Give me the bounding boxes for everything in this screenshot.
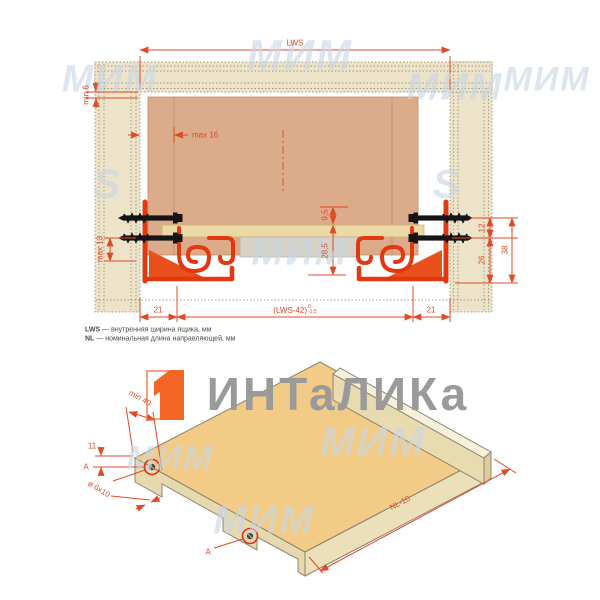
brand-logo-icon: [147, 370, 184, 420]
brand-title: ИНТаЛИКа: [207, 367, 469, 421]
drawer-back-recess: [240, 237, 357, 257]
dim-lws42-tolerance: 0 -1,5: [308, 305, 317, 315]
dim-max13-label: max 13: [96, 236, 105, 262]
dim-21-right-label: 21: [427, 306, 436, 315]
legend-text-lws: — внутренняя ширина ящика, мм: [100, 327, 211, 334]
dim-min6-label: min 6: [82, 85, 91, 105]
legend-line-nl: NL — номинальная длина направляющей, мм: [85, 336, 236, 343]
legend-term-nl: NL: [85, 336, 94, 343]
dim-max16-label: max 16: [192, 131, 218, 140]
tolerance-lower: -1,5: [308, 310, 317, 315]
legend-term-lws: LWS: [85, 327, 100, 334]
dim-38-label: 38: [501, 246, 510, 255]
top-cross-section-view: [86, 50, 518, 322]
dim-21-left-label: 21: [154, 306, 163, 315]
dim-12-label: 12: [478, 224, 487, 233]
cabinet-right-panel: [450, 62, 492, 312]
dim-26-label: 26: [478, 256, 487, 265]
dim-9-5-label: 9,5: [321, 209, 330, 220]
drawing-canvas: МИМ МИМ МИМ МИМ S S МИМ МИМ МИМ МИМ ИНТа…: [0, 0, 600, 600]
dim-28-5-label: 28,5: [321, 243, 330, 259]
dim-lws42-main: (LWS-42): [273, 306, 307, 315]
legend-line-lws: LWS — внутренняя ширина ящика, мм: [85, 327, 212, 334]
detail-a-label-front: A: [205, 548, 210, 557]
detail-a-label-left: A: [83, 463, 88, 472]
legend-text-nl: — номинальная длина направляющей, мм: [94, 336, 235, 343]
cabinet-left-panel: [95, 62, 140, 312]
dim-11-label: 11: [88, 442, 96, 451]
dim-lws-label: LWS: [287, 39, 304, 48]
drawer-bottom-strip: [162, 225, 424, 237]
dim-lws42-label: (LWS-42) 0 -1,5: [273, 305, 316, 315]
cabinet-top-panel: [95, 62, 492, 92]
